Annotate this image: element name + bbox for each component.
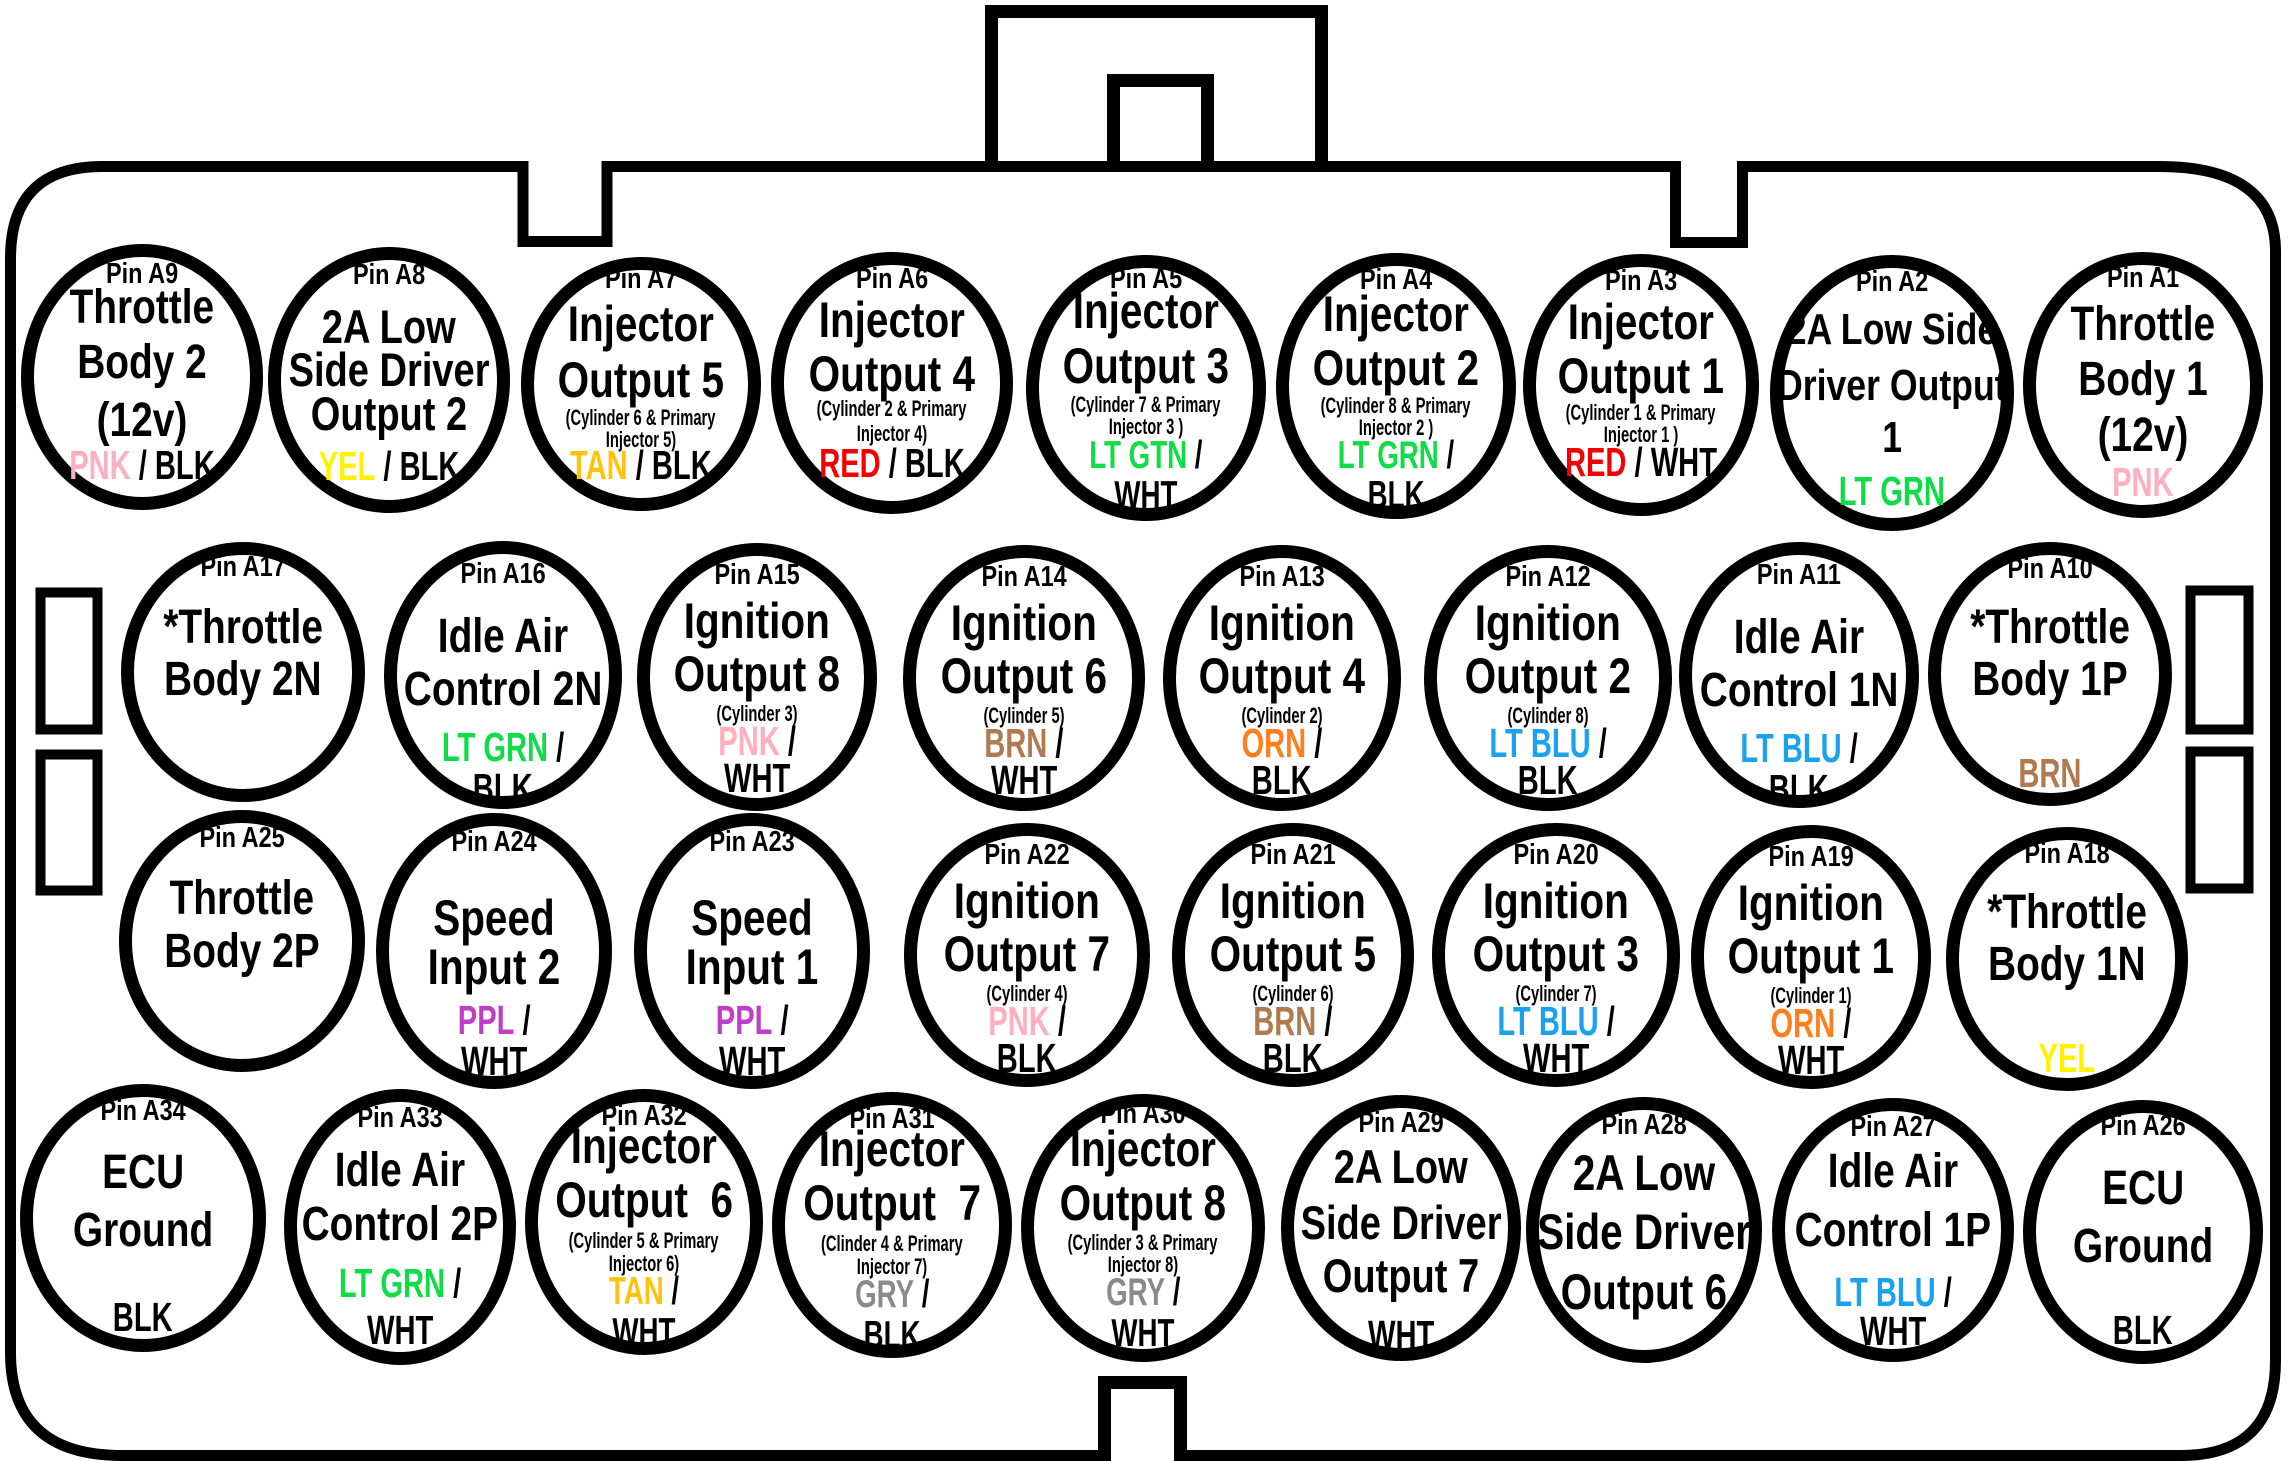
svg-text:Pin A13: Pin A13 bbox=[1240, 560, 1325, 593]
svg-text:WHT: WHT bbox=[1860, 1308, 1926, 1354]
svg-text:2A Low: 2A Low bbox=[1334, 1141, 1469, 1194]
svg-text:WHT: WHT bbox=[991, 757, 1057, 803]
svg-text:Pin A3: Pin A3 bbox=[1605, 264, 1677, 297]
svg-text:PPL /: PPL / bbox=[458, 997, 531, 1043]
svg-text:PNK: PNK bbox=[2112, 459, 2174, 505]
svg-text:Pin A24: Pin A24 bbox=[452, 825, 538, 858]
svg-text:LT GRN /: LT GRN / bbox=[339, 1260, 461, 1306]
svg-text:BLK: BLK bbox=[1518, 757, 1578, 803]
svg-text:Pin A10: Pin A10 bbox=[2008, 552, 2093, 585]
svg-text:BLK: BLK bbox=[1263, 1035, 1323, 1081]
svg-text:Output 7: Output 7 bbox=[1323, 1250, 1479, 1303]
svg-text:Driver Output: Driver Output bbox=[1777, 362, 2007, 410]
svg-text:Idle Air: Idle Air bbox=[335, 1143, 465, 1197]
svg-text:Output 5: Output 5 bbox=[558, 352, 724, 408]
svg-text:Ignition: Ignition bbox=[1483, 873, 1629, 929]
svg-text:Output 3: Output 3 bbox=[1473, 926, 1639, 982]
svg-text:Pin A25: Pin A25 bbox=[200, 821, 285, 854]
svg-text:Pin A34: Pin A34 bbox=[101, 1094, 187, 1127]
svg-text:ECU: ECU bbox=[102, 1145, 184, 1199]
svg-text:WHT: WHT bbox=[1778, 1037, 1844, 1083]
svg-text:ECU: ECU bbox=[2102, 1161, 2184, 1215]
svg-text:Pin A15: Pin A15 bbox=[715, 558, 800, 591]
svg-text:Pin A8: Pin A8 bbox=[353, 258, 425, 291]
svg-text:Ignition: Ignition bbox=[954, 873, 1100, 929]
svg-text:RED / BLK: RED / BLK bbox=[819, 440, 965, 486]
svg-text:Pin A27: Pin A27 bbox=[1851, 1110, 1936, 1143]
svg-text:LT GTN /: LT GTN / bbox=[1089, 433, 1203, 477]
svg-text:(12v): (12v) bbox=[97, 393, 188, 447]
svg-text:Injector: Injector bbox=[1073, 283, 1219, 339]
svg-text:Output 2: Output 2 bbox=[311, 388, 467, 441]
svg-text:LT GRN /: LT GRN / bbox=[442, 724, 564, 770]
svg-text:Output 1: Output 1 bbox=[1728, 928, 1894, 984]
svg-text:1: 1 bbox=[1882, 414, 1902, 462]
svg-text:Output 1: Output 1 bbox=[1558, 348, 1724, 404]
svg-text:Injector: Injector bbox=[819, 1121, 965, 1177]
svg-text:WHT: WHT bbox=[367, 1307, 433, 1353]
svg-text:Output 2: Output 2 bbox=[1313, 340, 1479, 396]
svg-text:Output 8: Output 8 bbox=[674, 646, 840, 702]
svg-text:Pin A18: Pin A18 bbox=[2025, 837, 2110, 870]
svg-text:Body 2P: Body 2P bbox=[164, 924, 319, 978]
svg-text:Pin A17: Pin A17 bbox=[201, 550, 286, 583]
svg-text:Ground: Ground bbox=[2073, 1219, 2213, 1273]
svg-text:Throttle: Throttle bbox=[2071, 297, 2216, 351]
svg-text:BLK: BLK bbox=[473, 765, 533, 811]
svg-text:Pin A12: Pin A12 bbox=[1506, 560, 1591, 593]
svg-text:Pin A1: Pin A1 bbox=[2107, 261, 2179, 294]
svg-text:Pin A14: Pin A14 bbox=[982, 560, 1068, 593]
svg-text:YEL: YEL bbox=[2039, 1035, 2096, 1081]
svg-text:Ground: Ground bbox=[73, 1203, 213, 1257]
svg-text:LT GRN /: LT GRN / bbox=[1338, 433, 1455, 477]
svg-text:Output 8: Output 8 bbox=[1060, 1175, 1226, 1231]
svg-text:(Cylinder 5 & Primary: (Cylinder 5 & Primary bbox=[569, 1228, 719, 1253]
svg-text:Injector: Injector bbox=[568, 296, 714, 352]
svg-text:WHT: WHT bbox=[1111, 1311, 1174, 1355]
svg-text:(Cylinder 8 & Primary: (Cylinder 8 & Primary bbox=[1321, 393, 1471, 418]
svg-text:Throttle: Throttle bbox=[170, 871, 315, 925]
svg-text:(Cylinder 2 & Primary: (Cylinder 2 & Primary bbox=[817, 396, 967, 421]
svg-text:Injector: Injector bbox=[819, 292, 965, 348]
svg-text:BLK: BLK bbox=[1769, 766, 1829, 812]
svg-text:PPL /: PPL / bbox=[716, 997, 789, 1043]
svg-text:Pin A21: Pin A21 bbox=[1251, 838, 1336, 871]
svg-text:*Throttle: *Throttle bbox=[1970, 600, 2130, 654]
svg-text:Body 2N: Body 2N bbox=[164, 652, 322, 706]
svg-text:BLK: BLK bbox=[1368, 473, 1425, 517]
svg-text:Throttle: Throttle bbox=[70, 280, 215, 334]
svg-text:Pin A7: Pin A7 bbox=[605, 262, 677, 295]
svg-text:Injector: Injector bbox=[1323, 286, 1469, 342]
svg-text:Speed: Speed bbox=[433, 890, 555, 946]
svg-text:(Clinder 4 & Primary: (Clinder 4 & Primary bbox=[821, 1231, 963, 1256]
svg-text:Ignition: Ignition bbox=[684, 593, 830, 649]
svg-text:Body 1P: Body 1P bbox=[1972, 652, 2127, 706]
svg-text:TAN / BLK: TAN / BLK bbox=[570, 442, 712, 488]
svg-text:Input 2: Input 2 bbox=[428, 939, 561, 995]
svg-text:Output 7: Output 7 bbox=[803, 1175, 981, 1231]
svg-text:Control 1N: Control 1N bbox=[1700, 663, 1899, 717]
svg-text:Output 5: Output 5 bbox=[1210, 926, 1376, 982]
svg-text:Output 2: Output 2 bbox=[1465, 648, 1631, 704]
svg-text:BLK: BLK bbox=[864, 1313, 921, 1357]
svg-text:Ignition: Ignition bbox=[1475, 595, 1621, 651]
svg-text:TAN /: TAN / bbox=[609, 1269, 680, 1313]
svg-text:BLK: BLK bbox=[2113, 1307, 2173, 1353]
svg-text:Output 7: Output 7 bbox=[944, 926, 1110, 982]
svg-text:PNK / BLK: PNK / BLK bbox=[69, 442, 215, 488]
svg-text:Ignition: Ignition bbox=[1738, 875, 1884, 931]
svg-text:Output 6: Output 6 bbox=[555, 1172, 733, 1228]
svg-text:BLK: BLK bbox=[1252, 757, 1312, 803]
svg-text:Pin A20: Pin A20 bbox=[1514, 838, 1599, 871]
svg-text:LT BLU /: LT BLU / bbox=[1740, 725, 1858, 771]
svg-text:WHT: WHT bbox=[1523, 1035, 1589, 1081]
svg-text:(Cylinder 3 & Primary: (Cylinder 3 & Primary bbox=[1068, 1230, 1218, 1255]
svg-text:Idle Air: Idle Air bbox=[438, 609, 568, 663]
svg-text:Idle Air: Idle Air bbox=[1734, 610, 1864, 664]
svg-text:YEL / BLK: YEL / BLK bbox=[319, 443, 460, 489]
svg-text:Output 6: Output 6 bbox=[1561, 1264, 1727, 1320]
svg-text:Idle Air: Idle Air bbox=[1828, 1144, 1958, 1198]
svg-text:Pin A2: Pin A2 bbox=[1856, 265, 1928, 298]
svg-text:Input 1: Input 1 bbox=[686, 939, 819, 995]
svg-text:*Throttle: *Throttle bbox=[1987, 885, 2147, 939]
svg-text:BRN: BRN bbox=[2018, 750, 2081, 796]
svg-text:(Cylinder 7 & Primary: (Cylinder 7 & Primary bbox=[1071, 392, 1221, 417]
svg-text:Body 1: Body 1 bbox=[2078, 352, 2208, 406]
svg-text:GRY /: GRY / bbox=[855, 1272, 930, 1316]
svg-text:2A Low: 2A Low bbox=[1573, 1145, 1716, 1201]
svg-text:Pin A11: Pin A11 bbox=[1757, 558, 1841, 591]
svg-text:Pin A33: Pin A33 bbox=[358, 1101, 443, 1134]
svg-text:BLK: BLK bbox=[113, 1294, 173, 1340]
svg-text:Pin A26: Pin A26 bbox=[2101, 1109, 2186, 1142]
svg-text:*Throttle: *Throttle bbox=[163, 600, 323, 654]
svg-text:Pin A28: Pin A28 bbox=[1602, 1108, 1687, 1141]
svg-text:Ignition: Ignition bbox=[951, 595, 1097, 651]
svg-text:RED / WHT: RED / WHT bbox=[1565, 439, 1717, 485]
svg-text:Output 3: Output 3 bbox=[1063, 338, 1229, 394]
svg-text:Pin A19: Pin A19 bbox=[1769, 840, 1854, 873]
svg-text:WHT: WHT bbox=[612, 1310, 675, 1354]
svg-text:Control 2P: Control 2P bbox=[302, 1197, 498, 1251]
svg-text:Pin A29: Pin A29 bbox=[1359, 1106, 1444, 1139]
svg-text:Ignition: Ignition bbox=[1209, 595, 1355, 651]
svg-text:WHT: WHT bbox=[1114, 473, 1177, 517]
svg-text:2A Low Side: 2A Low Side bbox=[1787, 306, 1997, 354]
svg-text:(Cylinder 1 & Primary: (Cylinder 1 & Primary bbox=[1566, 400, 1716, 425]
svg-text:Side Driver: Side Driver bbox=[1537, 1204, 1751, 1260]
svg-text:Pin A6: Pin A6 bbox=[856, 262, 928, 295]
svg-text:Output 6: Output 6 bbox=[941, 648, 1107, 704]
svg-text:GRY /: GRY / bbox=[1106, 1270, 1181, 1314]
svg-text:Control 1P: Control 1P bbox=[1795, 1203, 1991, 1257]
svg-text:Side Driver: Side Driver bbox=[1301, 1197, 1502, 1250]
svg-text:Pin A23: Pin A23 bbox=[710, 825, 795, 858]
svg-text:Body 2: Body 2 bbox=[77, 335, 207, 389]
svg-text:Injector: Injector bbox=[1070, 1121, 1216, 1177]
svg-text:WHT: WHT bbox=[1368, 1312, 1434, 1358]
svg-text:Speed: Speed bbox=[691, 890, 813, 946]
svg-text:Injector: Injector bbox=[571, 1118, 717, 1174]
svg-text:Pin A16: Pin A16 bbox=[461, 557, 546, 590]
svg-text:Ignition: Ignition bbox=[1220, 873, 1366, 929]
svg-text:WHT: WHT bbox=[461, 1038, 527, 1084]
svg-text:Pin A22: Pin A22 bbox=[985, 838, 1070, 871]
svg-text:Output 4: Output 4 bbox=[809, 346, 976, 402]
svg-text:Injector: Injector bbox=[1568, 294, 1714, 350]
svg-text:Control 2N: Control 2N bbox=[404, 662, 603, 716]
svg-text:BLK: BLK bbox=[997, 1035, 1057, 1081]
svg-text:(12v): (12v) bbox=[2098, 408, 2189, 462]
svg-text:WHT: WHT bbox=[719, 1038, 785, 1084]
svg-text:Output 4: Output 4 bbox=[1199, 648, 1366, 704]
svg-text:(Cylinder 6 & Primary: (Cylinder 6 & Primary bbox=[566, 405, 716, 430]
svg-text:Body 1N: Body 1N bbox=[1988, 937, 2146, 991]
svg-text:LT GRN: LT GRN bbox=[1839, 468, 1945, 514]
svg-text:WHT: WHT bbox=[724, 755, 790, 801]
